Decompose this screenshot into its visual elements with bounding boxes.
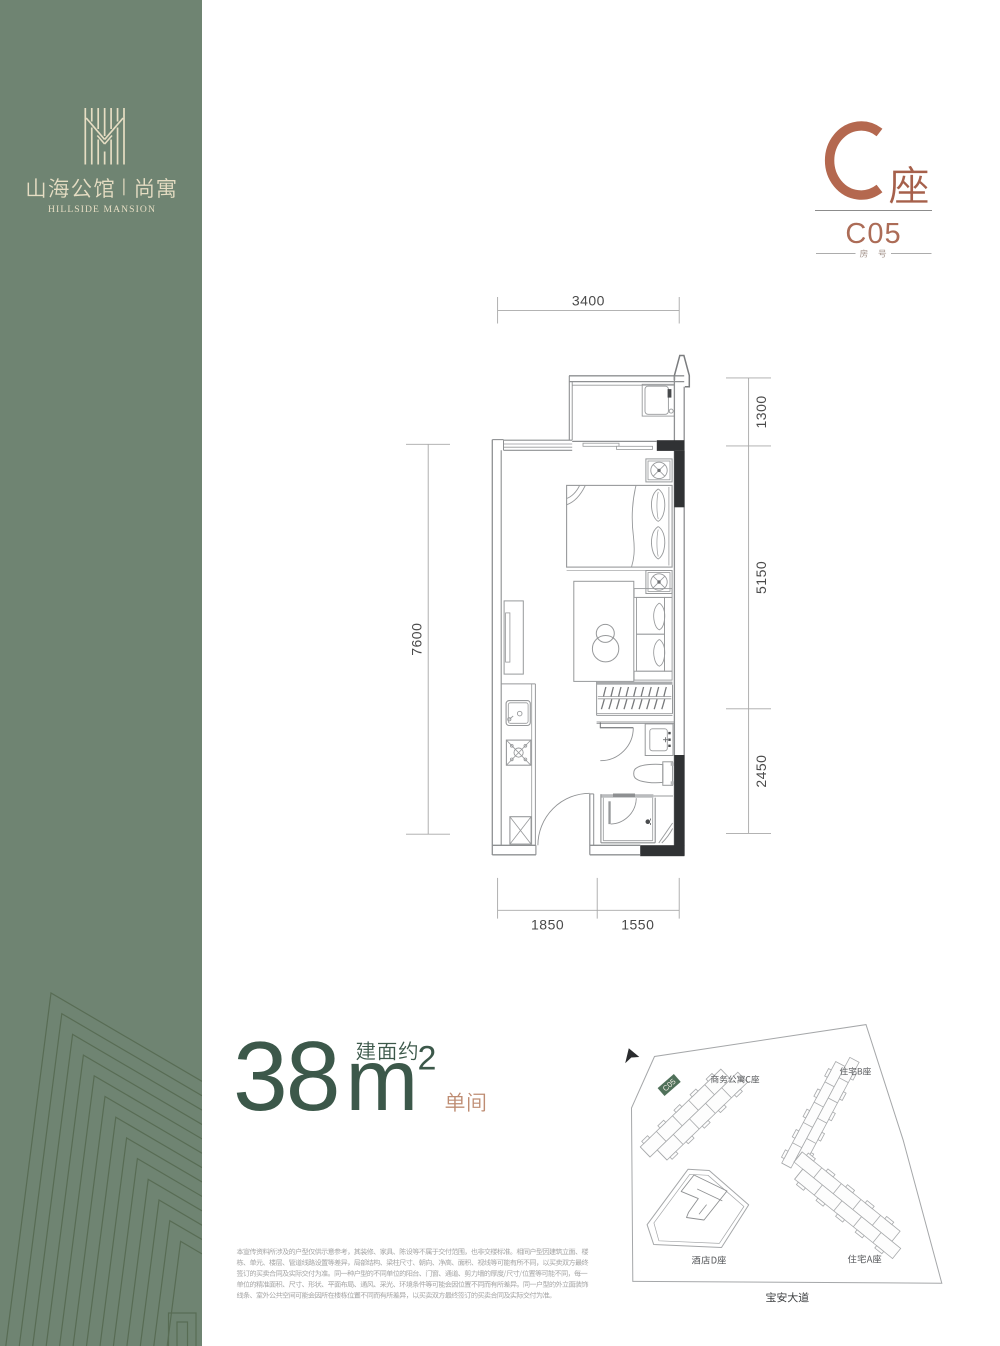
svg-text:3400: 3400	[572, 293, 605, 309]
svg-text:2: 2	[418, 1040, 437, 1078]
svg-text:5150: 5150	[753, 561, 769, 594]
svg-text:7600: 7600	[409, 623, 425, 656]
svg-text:2450: 2450	[753, 755, 769, 788]
svg-text:38m: 38m	[233, 1021, 418, 1131]
svg-text:1300: 1300	[753, 395, 769, 428]
svg-text:1550: 1550	[621, 917, 654, 933]
svg-text:1850: 1850	[531, 917, 564, 933]
